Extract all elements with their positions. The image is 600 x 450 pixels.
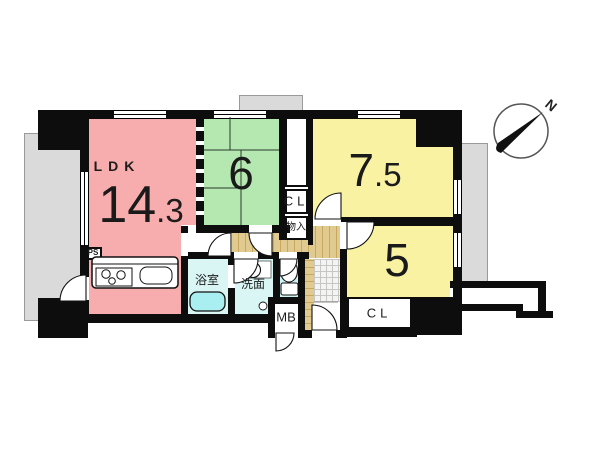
wall-corner-block (412, 297, 462, 335)
corridor-wall (516, 311, 553, 318)
wall-segment (341, 217, 462, 226)
counter-hatch (238, 259, 258, 264)
bedroom-5-size: 5 (384, 237, 410, 283)
room-bathroom (188, 259, 228, 315)
ldk-size-dec: .3 (156, 192, 184, 229)
washroom-label: 洗面 (241, 278, 265, 290)
door-arc-meter-box (276, 333, 294, 351)
japanese-room-size: 6 (228, 150, 254, 196)
window (80, 172, 89, 245)
corridor-wall (450, 281, 546, 288)
wall-segment (340, 329, 417, 337)
door-opening (181, 233, 188, 256)
floor-plan: N LDK 14.3 6 7.5 5 CL 物入 CL MB PS 浴室 洗面 (0, 0, 600, 450)
corridor-wall (538, 281, 546, 312)
door-opening (249, 225, 272, 233)
pipe-space-label: PS (88, 249, 99, 257)
bedroom-75-size: 7.5 (348, 147, 401, 193)
wall-segment (298, 330, 312, 338)
front-door-opening (312, 330, 336, 338)
closet-bedroom-label: CL (367, 307, 392, 320)
door-opening (313, 217, 341, 226)
outside-corridor (450, 288, 538, 304)
entrance-tile (314, 259, 340, 302)
room-ldk-kitchen-area (88, 225, 181, 315)
wall-segment (298, 252, 305, 338)
wall-segment (453, 214, 462, 233)
wall-segment (279, 110, 285, 240)
door-opening (228, 265, 235, 288)
room-toilet (280, 259, 298, 297)
compass-needle (496, 112, 543, 153)
balcony-right (461, 143, 488, 282)
window (453, 233, 462, 267)
balcony-left (24, 133, 82, 321)
entrance-hall-strip (305, 259, 314, 330)
door-opening (279, 252, 297, 259)
window (214, 110, 266, 119)
door-opening (80, 277, 89, 300)
sliding-door-wall (196, 117, 204, 225)
wall-segment (228, 288, 235, 315)
wall-segment (80, 110, 89, 172)
wall-segment (340, 249, 347, 338)
closet-tall (285, 117, 308, 187)
compass-north-label: N (542, 96, 560, 115)
corridor-wall (450, 304, 522, 311)
door-opening (234, 252, 258, 259)
wall-segment (80, 314, 273, 323)
window (453, 180, 462, 214)
entrance-step (314, 302, 338, 330)
ldk-size: 14.3 (98, 179, 183, 231)
meter-box-label: MB (276, 311, 296, 324)
storage-hall-label: 物入 (286, 223, 306, 233)
bathroom-label: 浴室 (195, 274, 219, 286)
window (114, 110, 166, 119)
bedroom-75-size-dec: .5 (374, 156, 402, 193)
compass: N (494, 96, 560, 158)
door-opening (340, 222, 347, 249)
window (358, 110, 400, 119)
wall-segment (453, 110, 462, 180)
wall-segment (188, 252, 234, 259)
ldk-size-main: 14 (98, 176, 156, 234)
closet-hall-label: CL (284, 195, 309, 208)
bedroom-75-size-main: 7 (348, 144, 374, 196)
wall-segment (196, 225, 249, 233)
wall-segment (181, 256, 188, 323)
ldk-label: LDK (94, 159, 141, 173)
wall-segment (268, 297, 275, 338)
